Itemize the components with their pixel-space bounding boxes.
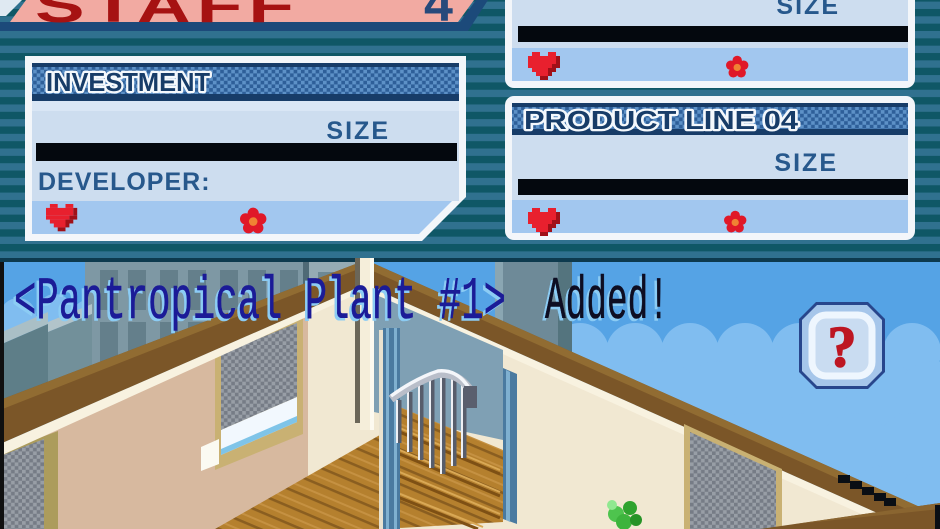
svg-text:PRODUCT LINE 04: PRODUCT LINE 04: [524, 105, 799, 135]
svg-text:INVESTMENT: INVESTMENT: [46, 67, 210, 97]
svg-text:SIZE: SIZE: [774, 149, 838, 177]
svg-text:DEVELOPER:: DEVELOPER:: [38, 168, 211, 196]
svg-text:SIZE: SIZE: [326, 117, 390, 145]
svg-text:<Pantropical Plant #1>: <Pantropical Plant #1>: [14, 269, 506, 337]
svg-text:Added!: Added!: [545, 269, 669, 337]
svg-text:STAFF: STAFF: [35, 0, 300, 33]
svg-text:4: 4: [424, 0, 453, 33]
svg-text:?: ?: [828, 314, 857, 379]
svg-text:SIZE: SIZE: [776, 0, 840, 20]
